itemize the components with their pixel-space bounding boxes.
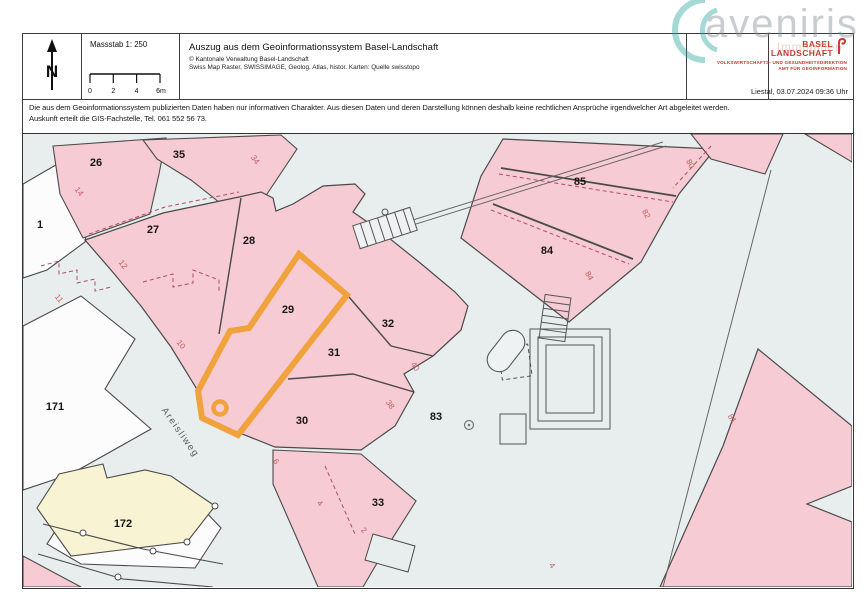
datestamp: Liestal, 03.07.2024 09:36 Uhr [751, 87, 848, 96]
parcel-label-30: 30 [296, 415, 308, 427]
sources-line: Swiss Map Raster, SWISSIMAGE, Geolog. At… [189, 64, 687, 71]
north-arrow-box: N [23, 34, 81, 99]
cadastral-map[interactable]: 2635127282932313083331711728485 14121110… [23, 134, 852, 587]
scale-tick-2: 2 [111, 88, 115, 95]
parcel-label-35: 35 [173, 149, 185, 161]
north-arrow-icon: N [23, 34, 81, 99]
org-name-line2: LANDSCHAFT [771, 49, 833, 58]
divider [686, 34, 687, 99]
map-area[interactable]: 2635127282932313083331711728485 14121110… [22, 133, 854, 589]
north-label: N [46, 62, 58, 81]
title-block: Auszug aus dem Geoinformationssystem Bas… [179, 34, 687, 99]
parcel-label-28: 28 [243, 235, 255, 247]
parcel-label-171: 171 [46, 401, 64, 413]
org-logo-block: BASEL LANDSCHAFT VOLKSWIRTSCHAFTS- UND G… [717, 37, 847, 72]
scale-bar: 0 2 4 6m [81, 52, 179, 98]
survey-marker-dot [468, 424, 471, 427]
scale-tick-0: 0 [88, 88, 92, 95]
disclaimer-line1: Die aus dem Geoinformationssystem publiz… [29, 103, 730, 112]
parcel-label-84: 84 [541, 245, 554, 257]
survey-point [382, 209, 388, 215]
parcel-label-31: 31 [328, 347, 340, 359]
parcel-label-29: 29 [282, 304, 294, 316]
scale-box: Massstab 1: 250 0 2 4 6m [81, 34, 179, 99]
parcel-label-172: 172 [114, 518, 132, 530]
parcel-label-32: 32 [382, 318, 394, 330]
copyright-line: © Kantonale Verwaltung Basel-Landschaft [189, 56, 687, 63]
header-frame: N Massstab 1: 250 0 2 4 6m Auszug aus de… [22, 33, 854, 100]
parcel-label-85: 85 [574, 176, 586, 188]
scale-label: Massstab 1: 250 [90, 40, 147, 49]
parcel-label-1: 1 [37, 219, 43, 231]
extract-title: Auszug aus dem Geoinformationssystem Bas… [189, 42, 687, 53]
parcel-label-83: 83 [430, 411, 442, 423]
parcel-label-27: 27 [147, 224, 159, 236]
org-dept-line2: AMT FÜR GEOINFORMATION [717, 66, 847, 72]
crozier-icon [836, 37, 847, 55]
disclaimer-line2: Auskunft erteilt die GIS-Fachstelle, Tel… [29, 114, 207, 123]
parcel-label-26: 26 [90, 157, 102, 169]
disclaimer-box: Die aus dem Geoinformationssystem publiz… [22, 99, 854, 134]
parcel-label-33: 33 [372, 497, 384, 509]
scale-tick-4: 4 [135, 88, 139, 95]
scale-tick-6m: 6m [156, 88, 166, 95]
